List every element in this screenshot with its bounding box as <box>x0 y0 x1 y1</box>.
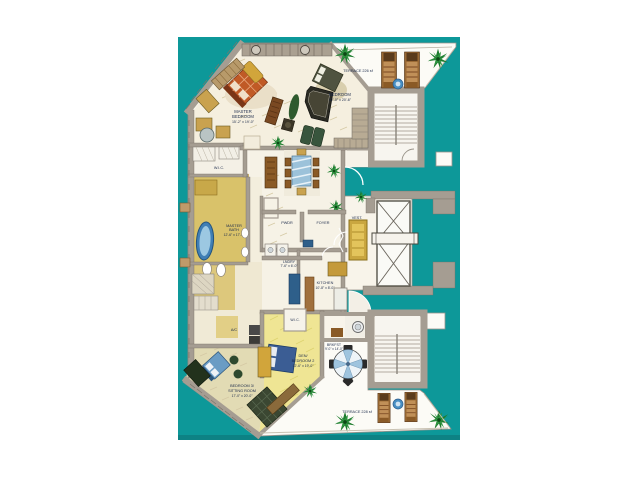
svg-text:PWDR: PWDR <box>281 221 293 225</box>
svg-text:W.I.C.: W.I.C. <box>290 318 299 322</box>
svg-text:DEN/: DEN/ <box>298 354 308 358</box>
svg-text:BATH: BATH <box>229 228 239 232</box>
svg-text:W.I.C.: W.I.C. <box>214 166 224 170</box>
svg-text:7'-6" x 6'-0": 7'-6" x 6'-0" <box>280 264 298 268</box>
svg-text:FOYER: FOYER <box>316 221 329 225</box>
svg-text:TERRACE 228 sf: TERRACE 228 sf <box>342 410 372 414</box>
svg-text:A/C: A/C <box>231 328 238 332</box>
svg-text:BEDROOM 3/: BEDROOM 3/ <box>230 384 255 388</box>
svg-text:TERRACE 226 sf: TERRACE 226 sf <box>343 69 373 73</box>
svg-text:15'-2" x 19'-0": 15'-2" x 19'-0" <box>232 120 255 124</box>
svg-text:BEDROOM 2: BEDROOM 2 <box>292 359 315 363</box>
svg-text:SITTING ROOM: SITTING ROOM <box>228 389 256 393</box>
svg-text:BEDROOM: BEDROOM <box>329 92 351 97</box>
svg-text:12'-6" x 19'-0": 12'-6" x 19'-0" <box>293 364 315 368</box>
svg-text:BEDROOM: BEDROOM <box>232 114 254 119</box>
svg-text:12'-0" x 20'-6": 12'-0" x 20'-6" <box>329 98 352 102</box>
svg-text:VEST.: VEST. <box>352 216 363 220</box>
svg-text:10'-8" x 8'-0": 10'-8" x 8'-0" <box>316 286 336 290</box>
svg-text:9'-0" x 14'-0": 9'-0" x 14'-0" <box>325 347 343 351</box>
svg-text:17'-0" x 20'-0": 17'-0" x 20'-0" <box>232 394 254 398</box>
svg-text:KITCHEN: KITCHEN <box>317 281 334 285</box>
